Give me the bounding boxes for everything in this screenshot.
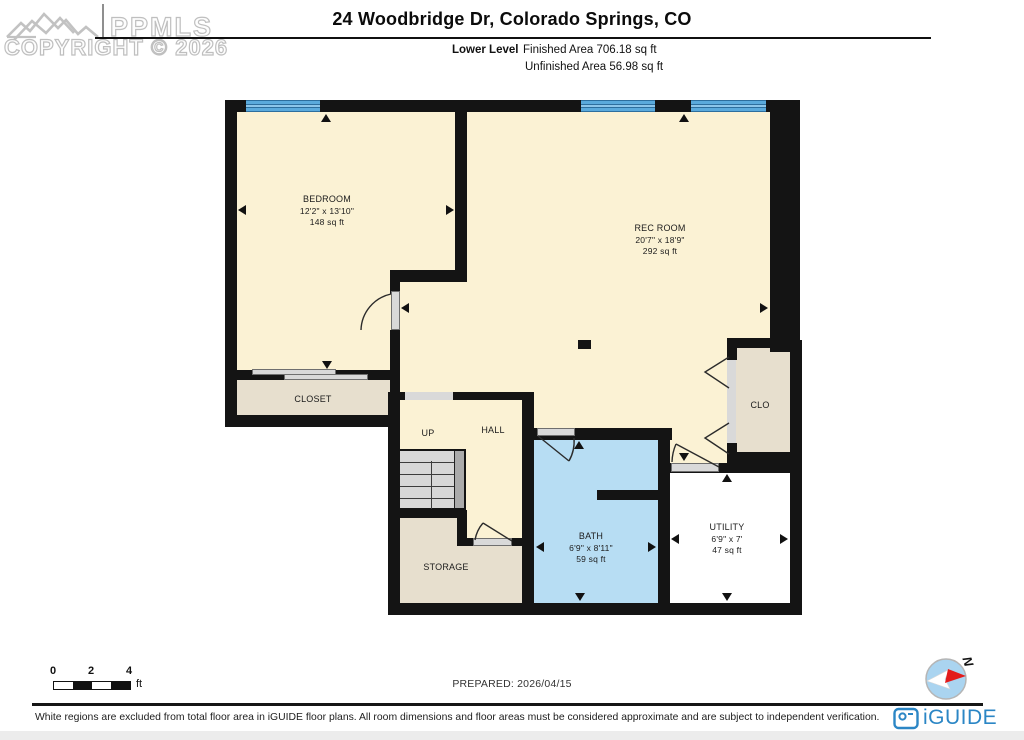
- room-name: HALL: [481, 425, 504, 437]
- wall-segment: [388, 603, 802, 615]
- room-area: 148 sq ft: [300, 217, 354, 228]
- dimension-arrow-right: [760, 303, 768, 313]
- wall-segment: [790, 340, 802, 615]
- dimension-arrow-right: [648, 542, 656, 552]
- dimension-arrow-left: [536, 542, 544, 552]
- window: [691, 100, 766, 112]
- room-dims: 12'2" x 13'10": [300, 206, 354, 217]
- disclaimer-text: White regions are excluded from total fl…: [35, 712, 879, 723]
- dimension-arrow-down: [575, 593, 585, 601]
- utility-door-sill: [671, 463, 719, 472]
- room-name: REC ROOM: [634, 223, 685, 235]
- floorplan-page: PPMLS COPYRIGHT © 2026 24 Woodbridge Dr,…: [0, 0, 1024, 740]
- scale-tick-2: 2: [88, 665, 94, 677]
- wall-segment: [578, 340, 591, 349]
- room-fill-finished: [231, 106, 794, 374]
- room-fill-storage: [398, 546, 522, 603]
- wall-segment: [727, 338, 737, 360]
- compass-north-label: N: [959, 655, 976, 669]
- wall-segment: [597, 490, 658, 500]
- room-label-storage: STORAGE: [423, 562, 468, 574]
- dimension-arrow-right: [446, 205, 454, 215]
- scale-tick-0: 0: [50, 665, 56, 677]
- bath-door-sill: [537, 428, 575, 436]
- dimension-arrow-down: [322, 361, 332, 369]
- room-label-bath: BATH 6'9" x 8'11" 59 sq ft: [569, 531, 613, 565]
- room-dims: 6'9" x 7': [710, 534, 745, 545]
- room-label-rec-room: REC ROOM 20'7" x 18'9" 292 sq ft: [634, 223, 685, 257]
- window: [581, 100, 655, 112]
- room-fill-bath: [534, 436, 658, 603]
- wall-segment: [390, 330, 400, 392]
- bottom-strip: [0, 731, 1024, 740]
- bedroom-door-slab: [391, 291, 400, 330]
- staircase-rail: [454, 451, 464, 508]
- clo-door-track: [727, 360, 736, 443]
- scale-tick-4: 4: [126, 665, 132, 677]
- dimension-arrow-left: [401, 303, 409, 313]
- wall-segment: [388, 392, 400, 615]
- dimension-arrow-down: [679, 453, 689, 461]
- dimension-arrow-left: [671, 534, 679, 544]
- wall-segment: [225, 415, 400, 427]
- dimension-arrow-left: [238, 205, 246, 215]
- dimension-arrow-right: [780, 534, 788, 544]
- room-dims: 20'7" x 18'9": [634, 235, 685, 246]
- room-area: 292 sq ft: [634, 246, 685, 257]
- dimension-arrow-up: [679, 114, 689, 122]
- dimension-arrow-up: [321, 114, 331, 122]
- dimension-arrow-up: [722, 474, 732, 482]
- room-area: 59 sq ft: [569, 554, 613, 565]
- room-name: STORAGE: [423, 562, 468, 574]
- room-dims: 6'9" x 8'11": [569, 543, 613, 554]
- wall-segment: [522, 392, 534, 603]
- wall-segment: [455, 112, 467, 274]
- floor-plan: BEDROOM 12'2" x 13'10" 148 sq ft REC ROO…: [0, 0, 1024, 740]
- wall-segment: [727, 443, 737, 465]
- room-label-clo: CLO: [750, 400, 769, 412]
- wall-segment: [390, 270, 467, 282]
- room-label-utility: UTILITY 6'9" x 7' 47 sq ft: [710, 522, 745, 556]
- iguide-camera-icon: [893, 706, 920, 730]
- label-stairs-up: UP: [422, 428, 435, 440]
- room-area: 47 sq ft: [710, 545, 745, 556]
- north-compass-icon: N: [920, 648, 978, 706]
- room-name: UP: [422, 428, 435, 440]
- wall-segment: [398, 510, 466, 518]
- window: [246, 100, 320, 112]
- hall-opening: [405, 392, 453, 400]
- iguide-wordmark: iGUIDE: [923, 706, 997, 730]
- room-label-hall: HALL: [481, 425, 504, 437]
- room-label-bedroom: BEDROOM 12'2" x 13'10" 148 sq ft: [300, 194, 354, 228]
- dimension-arrow-up: [574, 441, 584, 449]
- room-name: UTILITY: [710, 522, 745, 534]
- footer-rule: [32, 703, 983, 706]
- room-name: BEDROOM: [300, 194, 354, 206]
- iguide-logo: iGUIDE: [893, 706, 997, 730]
- prepared-date: PREPARED: 2026/04/15: [0, 678, 1024, 690]
- dimension-arrow-down: [722, 593, 732, 601]
- staircase-midline: [431, 461, 432, 509]
- closet-sliding-door: [284, 374, 368, 380]
- room-name: CLO: [750, 400, 769, 412]
- storage-door-sill: [473, 538, 512, 546]
- wall-segment: [770, 100, 800, 352]
- wall-segment: [658, 428, 670, 603]
- room-name: CLOSET: [294, 394, 331, 406]
- room-label-closet: CLOSET: [294, 394, 331, 406]
- room-name: BATH: [569, 531, 613, 543]
